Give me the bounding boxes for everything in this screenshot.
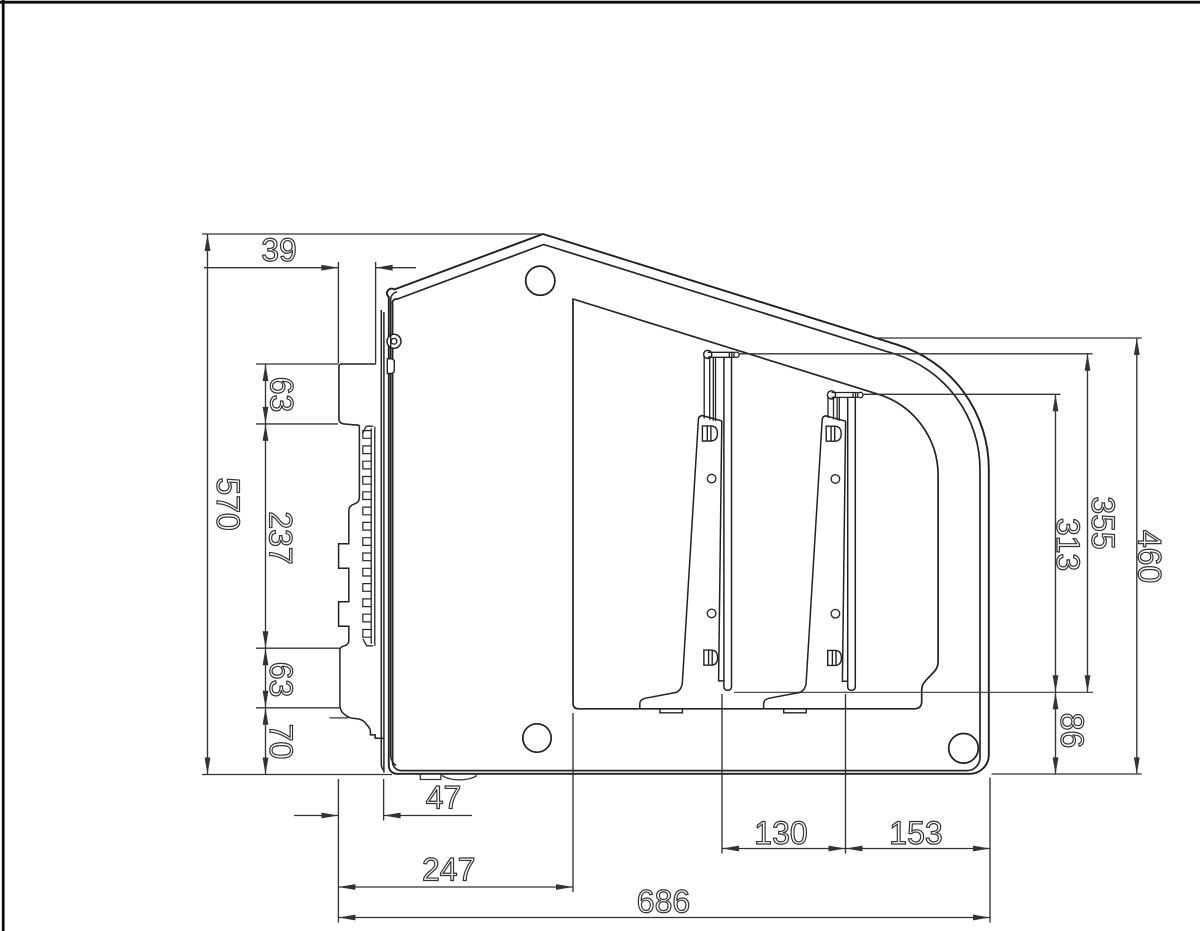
- svg-text:47: 47: [426, 780, 462, 816]
- svg-text:153: 153: [889, 815, 942, 851]
- svg-text:313: 313: [1050, 518, 1086, 571]
- svg-text:247: 247: [422, 852, 475, 888]
- svg-text:63: 63: [264, 377, 300, 413]
- svg-text:460: 460: [1132, 530, 1168, 583]
- svg-text:570: 570: [210, 477, 246, 530]
- svg-text:86: 86: [1054, 713, 1090, 749]
- svg-text:130: 130: [754, 815, 807, 851]
- svg-text:70: 70: [263, 724, 299, 760]
- svg-text:237: 237: [263, 511, 299, 564]
- svg-text:355: 355: [1085, 496, 1121, 549]
- svg-text:39: 39: [261, 232, 297, 268]
- svg-text:63: 63: [263, 662, 299, 698]
- svg-text:686: 686: [637, 884, 690, 920]
